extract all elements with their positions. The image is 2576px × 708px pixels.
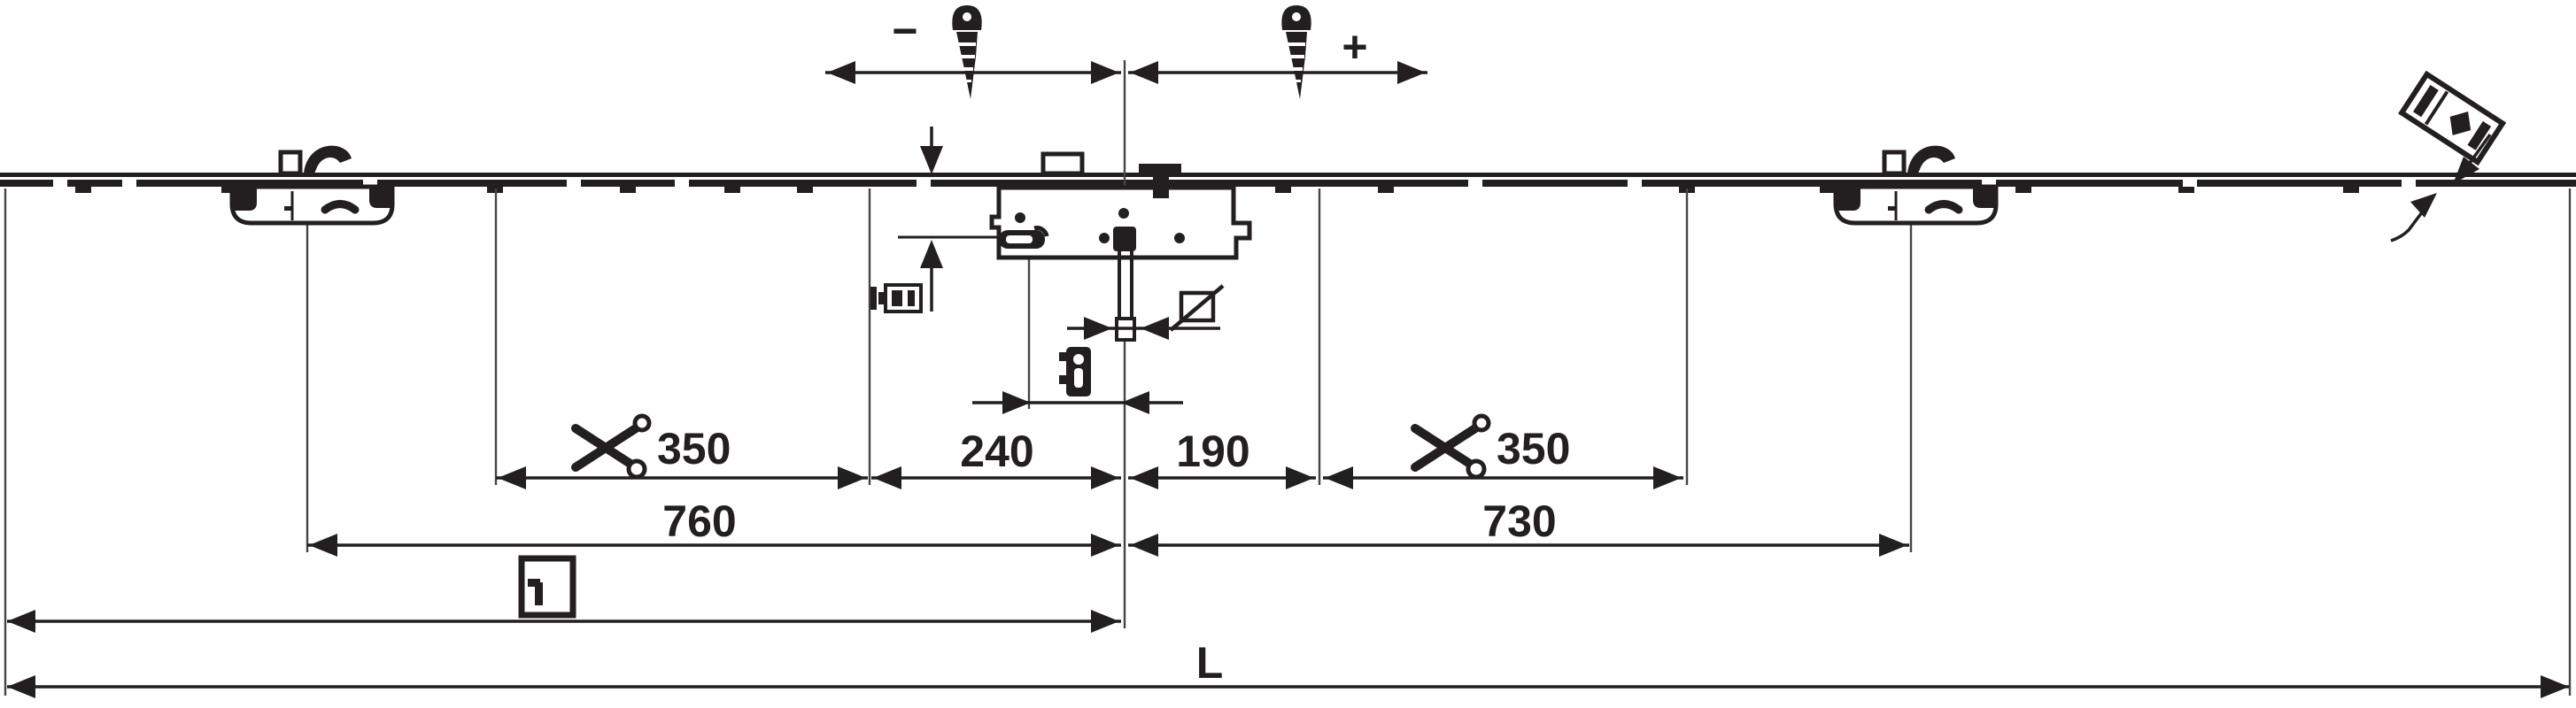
dim-240-label: 240	[960, 427, 1033, 476]
fixing-screw-icon	[870, 285, 921, 312]
extension-lines	[5, 60, 2570, 696]
dim-cut-left-label: 350	[657, 424, 731, 473]
dim-total-length-label: L	[1196, 638, 1224, 688]
total-length-dimension: L	[7, 638, 2569, 698]
profile-cylinder-icon	[1059, 347, 1091, 396]
keep-dimension-row: 760 730	[307, 496, 1909, 557]
spindle-shaft	[1117, 251, 1134, 340]
lock-dimension-diagram: − +	[0, 0, 2576, 708]
adjustment-callout: − +	[825, 5, 1427, 99]
window-handle-icon	[522, 558, 573, 615]
adjust-minus-label: −	[892, 6, 917, 56]
scissors-icon	[1415, 416, 1489, 477]
cut-dimension-row: 350 240 190 350	[496, 416, 1683, 489]
adjust-plus-label: +	[1342, 22, 1367, 72]
alignment-gauge-icon	[2402, 74, 2503, 162]
diagram-canvas: − +	[0, 0, 2576, 708]
alignment-gauge-callout	[2391, 74, 2503, 241]
screw-icon	[952, 5, 981, 99]
dim-760-label: 760	[662, 496, 736, 546]
screw-icon	[1281, 5, 1311, 99]
dim-190-label: 190	[1176, 427, 1249, 476]
gearbox-tab	[1043, 154, 1082, 173]
square-spindle-icon	[1171, 286, 1223, 330]
dim-cut-right-label: 350	[1497, 424, 1570, 473]
spindle-hub	[1113, 227, 1136, 251]
keep-cam-hook	[304, 146, 352, 173]
cylinder-hole	[999, 228, 1047, 249]
dim-730-label: 730	[1482, 496, 1556, 546]
scissors-icon	[576, 416, 649, 477]
keep-cam-hook	[1907, 146, 1955, 173]
